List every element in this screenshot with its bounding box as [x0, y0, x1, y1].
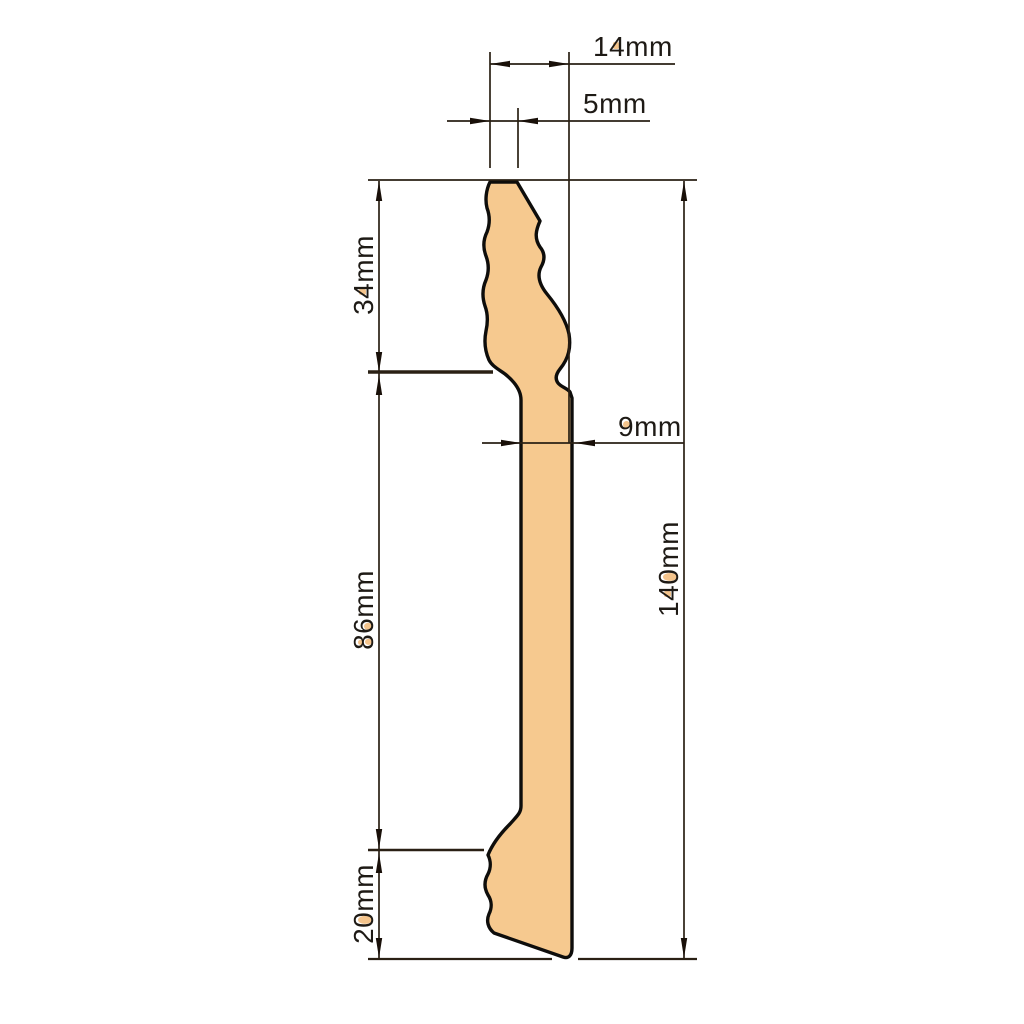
- arrow-9mm-left: [501, 440, 521, 446]
- dim-label-20mm: 20mm: [350, 864, 378, 944]
- arrow-5mm-left: [470, 118, 490, 124]
- dim-label-34mm: 34mm: [350, 235, 378, 315]
- dim-text-9mm: 9mm: [618, 411, 682, 442]
- arrow-14mm-right: [549, 61, 569, 67]
- dim-text-14mm: 14mm: [593, 31, 673, 62]
- skirting-profile-drawing: [0, 0, 1024, 1024]
- dim-text-34mm: 34mm: [348, 235, 379, 315]
- dim-text-140mm: 140mm: [653, 521, 684, 617]
- dim-label-140mm: 140mm: [655, 521, 683, 617]
- arrow-140mm-bottom: [681, 938, 687, 958]
- arrow-34mm-top: [376, 181, 382, 201]
- arrow-34mm-bottom: [376, 352, 382, 372]
- arrow-14mm-left: [490, 61, 510, 67]
- technical-drawing-canvas: 14mm 5mm 9mm 34mm 86mm 140mm 20mm: [0, 0, 1024, 1024]
- dim-text-20mm: 20mm: [348, 864, 379, 944]
- dim-label-14mm: 14mm: [593, 33, 673, 61]
- dim-text-86mm: 86mm: [348, 570, 379, 650]
- arrow-86mm-top: [376, 375, 382, 395]
- arrow-86mm-bottom: [376, 829, 382, 849]
- dim-label-9mm: 9mm: [618, 413, 682, 441]
- arrow-9mm-right: [575, 440, 595, 446]
- arrow-140mm-top: [681, 181, 687, 201]
- skirting-profile-shape: [483, 182, 572, 958]
- dim-label-86mm: 86mm: [350, 570, 378, 650]
- arrow-5mm-right: [518, 118, 538, 124]
- dim-label-5mm: 5mm: [583, 90, 647, 118]
- dim-text-5mm: 5mm: [583, 88, 647, 119]
